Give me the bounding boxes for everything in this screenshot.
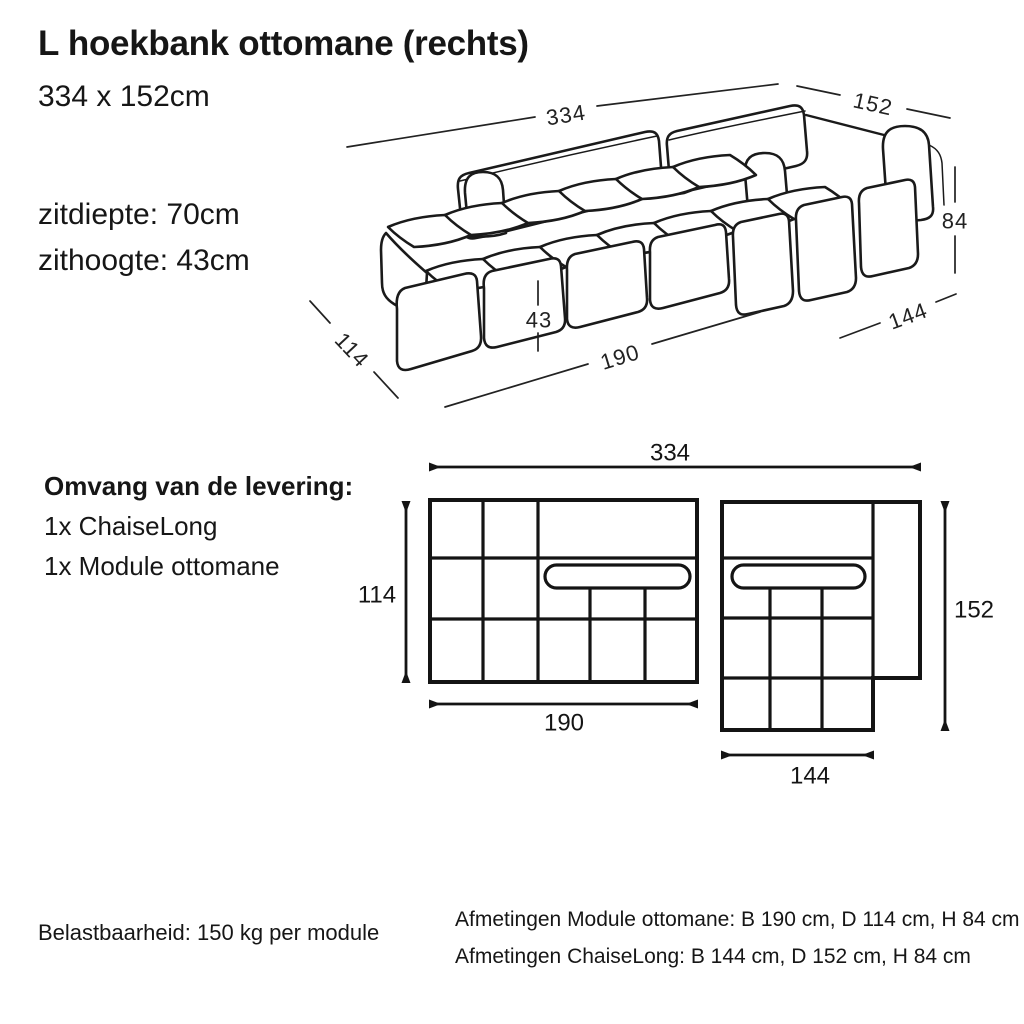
page-title: L hoekbank ottomane (rechts) xyxy=(38,24,529,64)
module-dimension-notes: Afmetingen Module ottomane: B 190 cm, D … xyxy=(455,901,1020,975)
module-headrest xyxy=(545,565,690,588)
dim-label-43: 43 xyxy=(526,308,552,333)
sofa-illustration: 334 152 84 144 190 114 43 xyxy=(300,75,1020,420)
schematic-label-144: 144 xyxy=(790,763,830,790)
dim-label-144: 144 xyxy=(885,297,931,334)
schematic-label-152: 152 xyxy=(954,597,994,624)
dim-line-144: 144 xyxy=(840,294,956,338)
schematic-label-114: 114 xyxy=(358,582,396,609)
schematic-label-190: 190 xyxy=(544,710,584,737)
dim-line-152: 152 xyxy=(797,86,950,121)
top-view-schematic: 334 114 190 152 144 xyxy=(350,440,1010,790)
dim-label-190: 190 xyxy=(597,339,642,375)
module-ottomane-dimensions: Afmetingen Module ottomane: B 190 cm, D … xyxy=(455,901,1020,938)
dim-label-114: 114 xyxy=(330,328,374,373)
chaise-headrest xyxy=(732,565,865,588)
seat-height-spec: zithoogte: 43cm xyxy=(38,238,250,284)
delivery-scope: Omvang van de levering: 1x ChaiseLong 1x… xyxy=(44,466,353,586)
dim-line-84: 84 xyxy=(942,167,968,273)
dim-label-84: 84 xyxy=(942,209,968,234)
product-dimension-sheet: { "page": { "background": "#ffffff", "li… xyxy=(0,0,1024,1024)
load-capacity: Belastbaarheid: 150 kg per module xyxy=(38,920,379,946)
schematic-module-ottomane xyxy=(430,500,697,682)
dim-line-114: 114 xyxy=(310,301,398,398)
dim-label-334: 334 xyxy=(544,100,587,131)
schematic-chaiselong xyxy=(722,502,920,730)
dim-label-152: 152 xyxy=(851,87,895,120)
seat-specs: zitdiepte: 70cm zithoogte: 43cm xyxy=(38,192,250,284)
schematic-dimensions: 334 114 190 152 144 xyxy=(358,440,994,790)
seat-depth-spec: zitdiepte: 70cm xyxy=(38,192,250,238)
chaiselong-dimensions: Afmetingen ChaiseLong: B 144 cm, D 152 c… xyxy=(455,938,1020,975)
back-rail xyxy=(806,115,884,135)
overall-dimensions: 334 x 152cm xyxy=(38,80,210,114)
delivery-item-chaiselong: 1x ChaiseLong xyxy=(44,506,353,546)
delivery-heading: Omvang van de levering: xyxy=(44,466,353,506)
delivery-item-module-ottomane: 1x Module ottomane xyxy=(44,546,353,586)
schematic-label-334: 334 xyxy=(650,440,690,467)
